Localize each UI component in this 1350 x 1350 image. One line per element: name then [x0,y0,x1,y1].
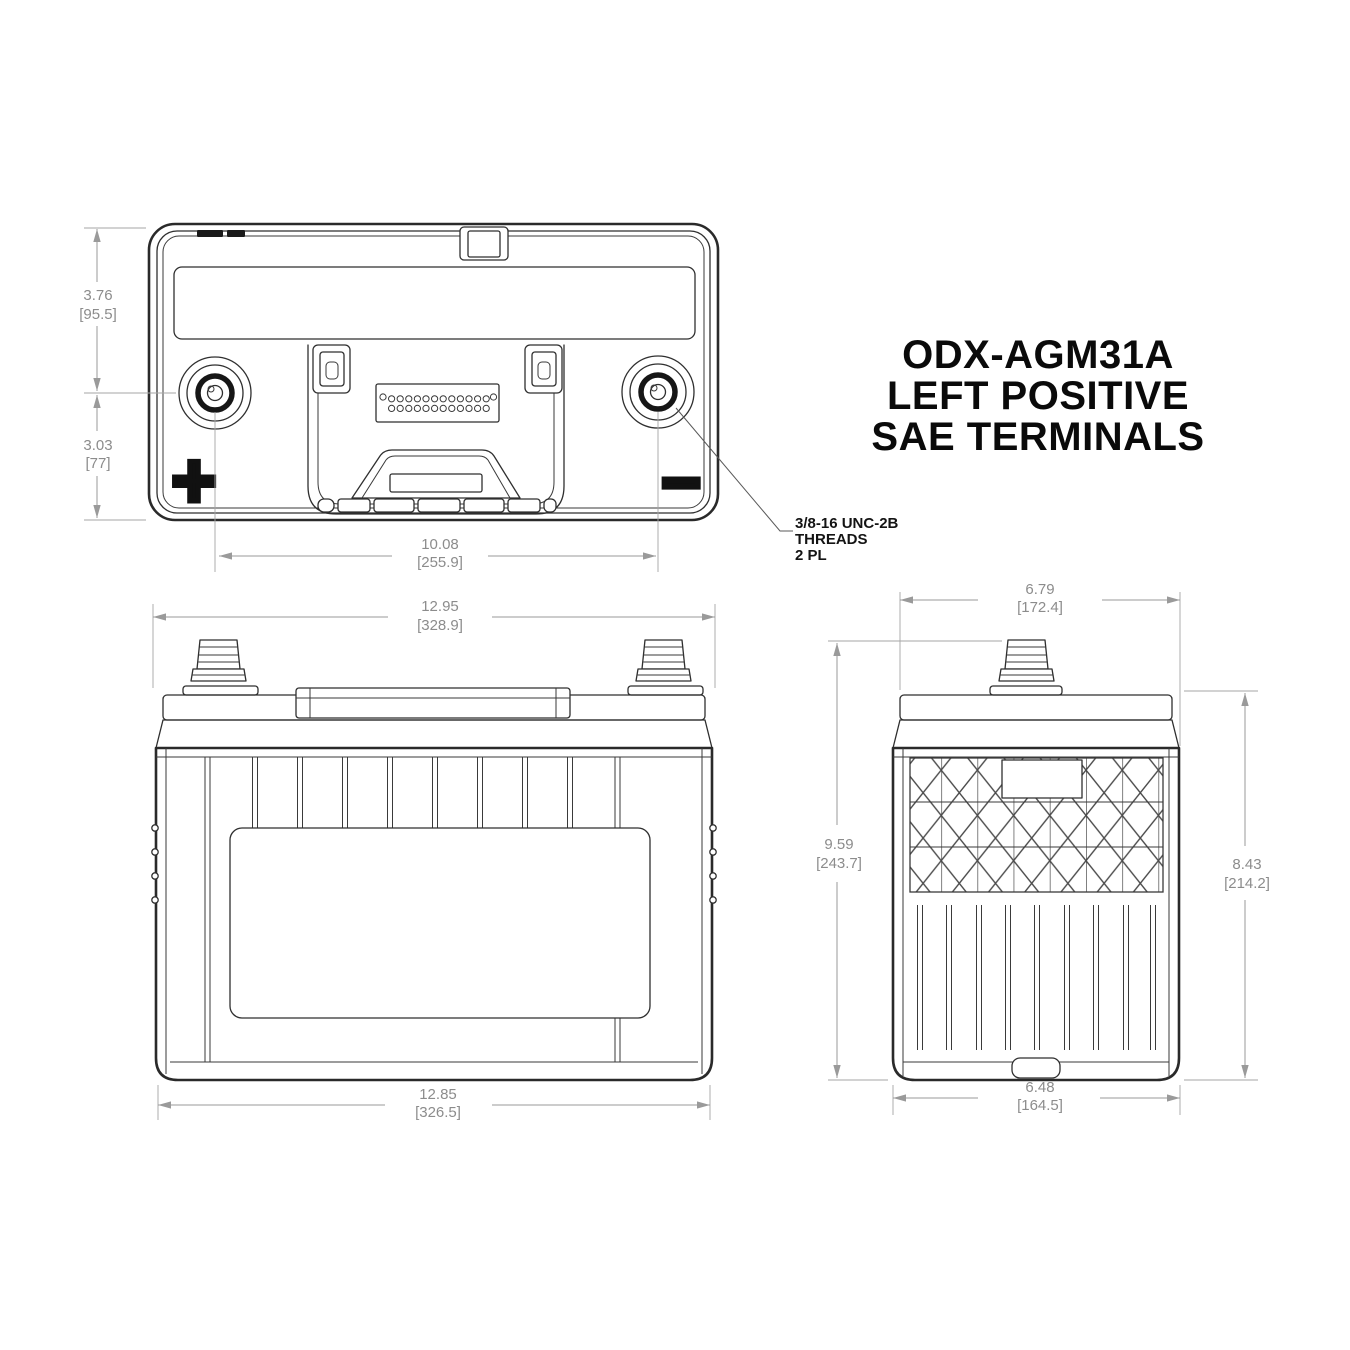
dim-front-width-top-in: 12.95 [421,598,459,615]
thread-callout-line3: 2 PL [795,547,827,564]
side-lid [893,695,1179,748]
side-ribs [918,905,1156,1050]
title-polarity: LEFT POSITIVE [887,374,1189,418]
side-label-window [1002,760,1082,798]
front-terminal-left [183,640,258,695]
front-label-recess [230,828,650,1018]
thread-callout-line1: 3/8-16 UNC-2B [795,515,899,532]
side-terminal [990,640,1062,695]
front-terminal-right [628,640,703,695]
side-lattice [910,758,1163,892]
dim-side-width-top-mm: [172.4] [1017,599,1063,616]
dim-side-width-bottom-mm: [164.5] [1017,1097,1063,1114]
dim-side-width-bottom-in: 6.48 [1025,1079,1054,1096]
thread-callout-line2: THREADS [795,531,868,548]
side-bottom-notch [1012,1058,1060,1078]
dim-side-height-overall-mm: [243.7] [816,855,862,872]
dim-side-width-top-in: 6.79 [1025,581,1054,598]
polarity-mark [197,230,223,237]
top-label-strip [174,267,695,339]
top-view: + − [149,224,718,524]
battery-dimension-drawing: + − 3.76 [95.5] 3.03 [77] 10.08 [255.9] … [0,0,1350,1350]
handle-recess [308,345,564,514]
vent-tab-inner [468,231,500,257]
dim-side-height-overall-in: 9.59 [824,836,853,853]
latch-right [525,345,562,393]
front-ribs [253,757,573,829]
dim-side-height-case-mm: [214.2] [1224,875,1270,892]
dim-top-upper-mm: [95.5] [79,306,117,323]
dim-top-lower-in: 3.03 [83,437,112,454]
dim-terminal-spacing-mm: [255.9] [417,554,463,571]
dim-terminal-spacing-in: 10.08 [421,536,459,553]
dim-front-width-top-mm: [328.9] [417,617,463,634]
side-view [893,640,1179,1080]
title-model: ODX-AGM31A [902,333,1174,377]
front-view [152,640,716,1080]
dim-top-upper-in: 3.76 [83,287,112,304]
latch-left [313,345,350,393]
drawing-canvas: + − 3.76 [95.5] 3.03 [77] 10.08 [255.9] … [0,0,1350,1350]
folded-handle [352,450,520,498]
minus-symbol: − [662,445,701,519]
side-body [893,748,1179,1080]
title-block: ODX-AGM31A LEFT POSITIVE SAE TERMINALS [871,333,1204,459]
dim-front-width-bottom-in: 12.85 [419,1086,457,1103]
polarity-mark2 [227,230,245,237]
title-terminals: SAE TERMINALS [871,415,1204,459]
vent-panel [376,384,499,422]
dim-front-width-bottom-mm: [326.5] [415,1104,461,1121]
plus-symbol: + [171,436,217,524]
front-lid [156,688,712,748]
dim-top-lower-mm: [77] [85,455,110,472]
recess-tabs [318,499,556,512]
thread-callout: 3/8-16 UNC-2B THREADS 2 PL [795,515,899,564]
dim-side-height-case-in: 8.43 [1232,856,1261,873]
front-body [152,748,716,1080]
